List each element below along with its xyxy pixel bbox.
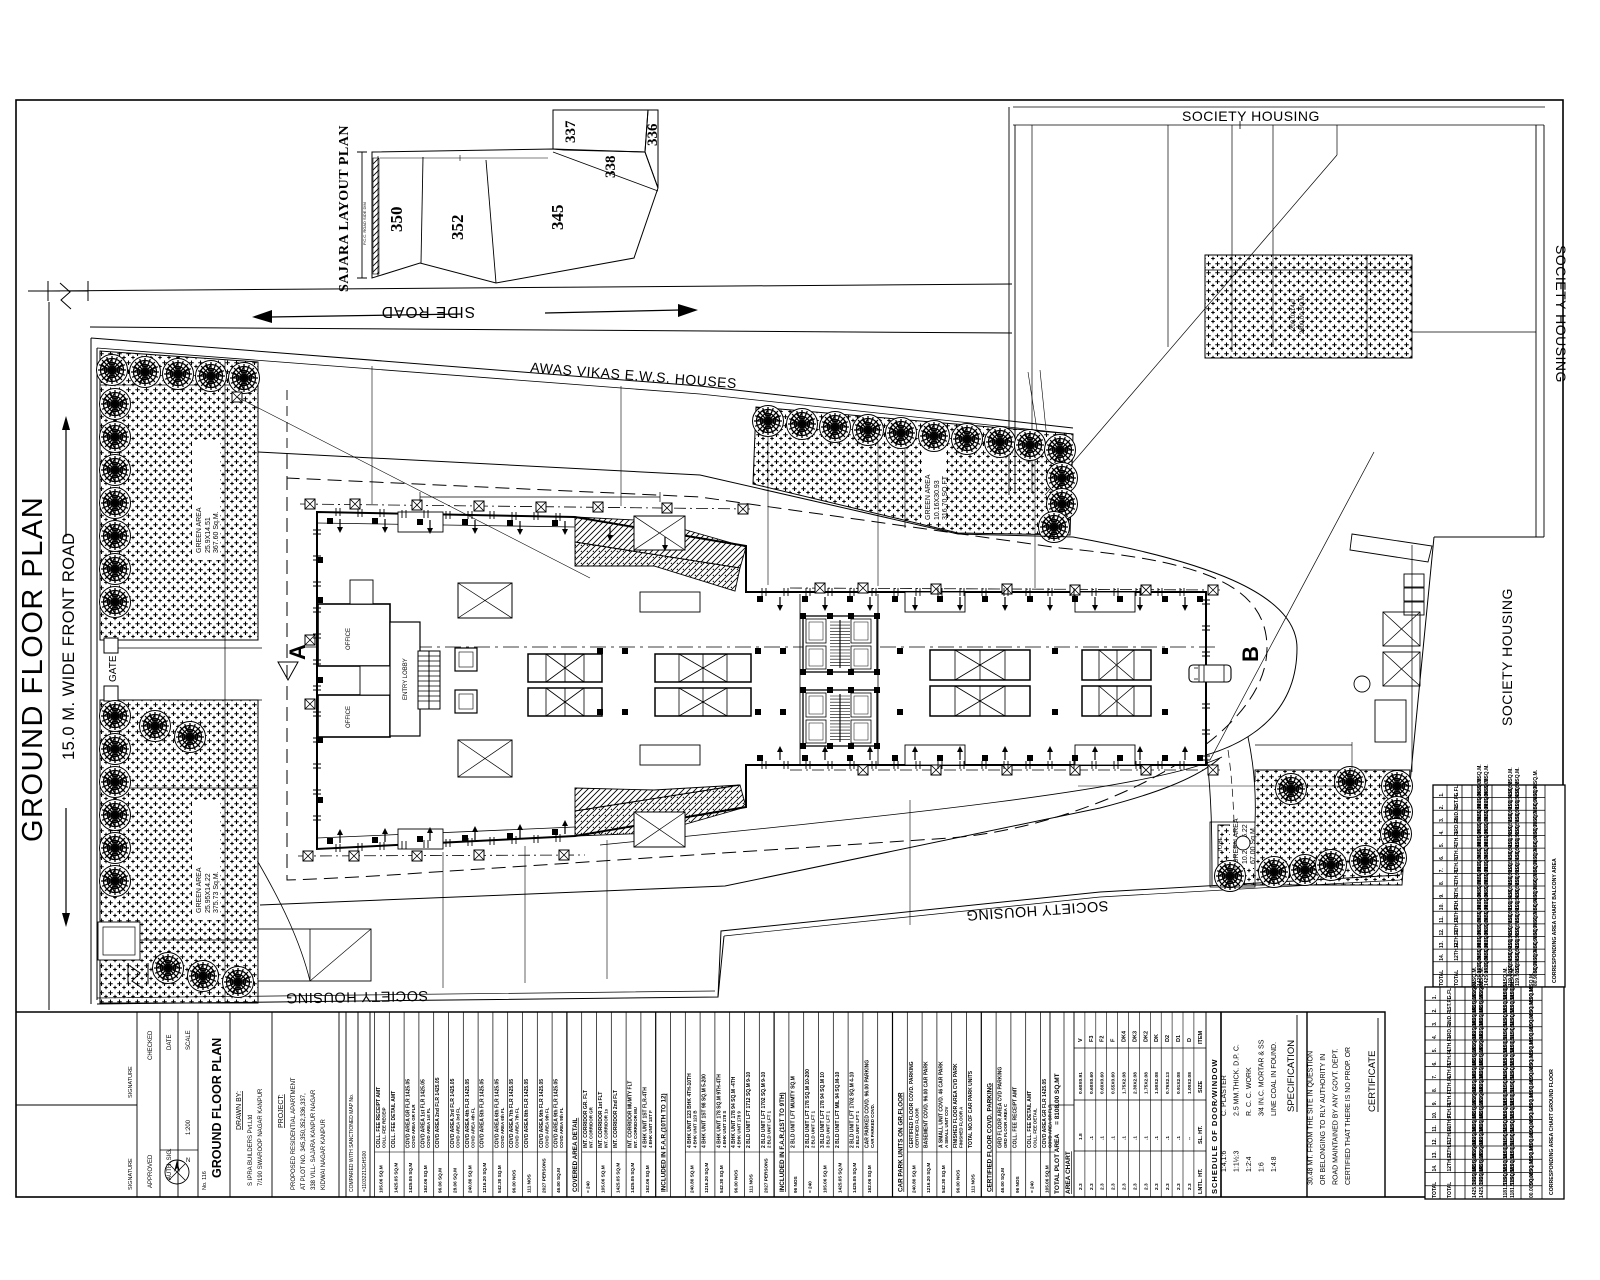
- svg-text:5.: 5.: [1439, 842, 1445, 847]
- svg-text:2.3: 2.3: [1111, 1183, 1117, 1190]
- svg-text:SIGNATURE: SIGNATURE: [128, 1066, 134, 1098]
- svg-text:SIGNATURE: SIGNATURE: [128, 1158, 134, 1190]
- svg-text:OR BELONGING TO RLY AUTHORITY: OR BELONGING TO RLY AUTHORITY IN: [1320, 1054, 1327, 1185]
- svg-text:46.00 SQ.M: 46.00 SQ.M: [1000, 1168, 1005, 1193]
- svg-text:COVD AREA 9th FL: COVD AREA 9th FL: [544, 1107, 549, 1148]
- svg-text:352: 352: [448, 215, 467, 241]
- svg-text:2 BLD UNIT LFT MIL 94 SQ.M-10: 2 BLD UNIT LFT MIL 94 SQ.M-10: [835, 1071, 841, 1148]
- svg-text:GROUND FLOOR PLAN: GROUND FLOOR PLAN: [17, 496, 49, 842]
- svg-text:4 BHK UNIT 1ST F: 4 BHK UNIT 1ST F: [648, 1110, 653, 1148]
- svg-text:46.00 SQ.M: 46.00 SQ.M: [556, 1168, 561, 1193]
- svg-text:1:4,1:6: 1:4,1:6: [1221, 1150, 1228, 1172]
- svg-text:0.91X2.08: 0.91X2.08: [1176, 1072, 1182, 1094]
- svg-text:3 BLD UNIT LFT 1: 3 BLD UNIT LFT 1: [826, 1110, 831, 1148]
- svg-text:2.: 2.: [1439, 804, 1445, 809]
- svg-text:F2: F2: [1100, 1036, 1106, 1042]
- svg-text:542.30 SQ.M: 542.30 SQ.M: [719, 1165, 724, 1193]
- svg-text:CORRESPONDING AREA CHART BALCO: CORRESPONDING AREA CHART BALCONY AREA: [1552, 858, 1558, 983]
- svg-text:CERTIFICATE: CERTIFICATE: [1367, 1051, 1378, 1112]
- svg-text:CAR PARK UNITS ON GR.FLOOR: CAR PARK UNITS ON GR.FLOOR: [898, 1092, 905, 1192]
- svg-text:DK: DK: [1154, 1034, 1160, 1042]
- svg-text:96 NOS: 96 NOS: [1015, 1176, 1020, 1193]
- svg-text:LNTL. HT.: LNTL. HT.: [1198, 1168, 1204, 1194]
- svg-text:PROPOSED RESIDENTIAL APARTMENT: PROPOSED RESIDENTIAL APARTMENT: [291, 1077, 297, 1190]
- svg-text:TOTAL: TOTAL: [1447, 1182, 1453, 1198]
- svg-text:30.48 MT. FROM THE SITE IN QUE: 30.48 MT. FROM THE SITE IN QUESTION: [1308, 1051, 1315, 1185]
- svg-text:.1: .1: [1122, 1136, 1128, 1140]
- svg-text:APPROVED: APPROVED: [148, 1154, 154, 1188]
- svg-text:DRAWN BY:: DRAWN BY:: [236, 1091, 243, 1130]
- svg-text:9.: 9.: [1439, 893, 1445, 898]
- svg-text:4 BHK UNIT 123 B: 4 BHK UNIT 123 B: [692, 1110, 697, 1148]
- svg-text:2.: 2.: [1432, 1008, 1438, 1013]
- svg-text:1425.05 SQ.M: 1425.05 SQ.M: [408, 1163, 413, 1193]
- svg-text:1425.05 SQ.M: 1425.05 SQ.M: [393, 1163, 398, 1193]
- svg-text:A SMALL UNIT COV: A SMALL UNIT COV: [944, 1106, 949, 1148]
- svg-text:ENTRY LOBBY: ENTRY LOBBY: [403, 658, 409, 700]
- svg-text:338: 338: [603, 156, 619, 179]
- svg-text:2800.00 SQ.M.: 2800.00 SQ.M.: [1300, 293, 1306, 334]
- svg-text:INT. CORRIDOR 1s: INT. CORRIDOR 1s: [604, 1108, 609, 1148]
- svg-text:S IPRA BUILDERS Pvt.Ltd: S IPRA BUILDERS Pvt.Ltd: [248, 1115, 254, 1186]
- svg-text:1216.20 SQ.M: 1216.20 SQ.M: [482, 1163, 487, 1193]
- svg-text:542.30 SQ.M: 542.30 SQ.M: [497, 1165, 502, 1193]
- svg-text:1425.05SQ.M.: 1425.05SQ.M.: [1472, 1165, 1478, 1198]
- svg-text:1181.51SQ.M.: 1181.51SQ.M.: [1510, 1165, 1516, 1198]
- svg-text:SPECIFICATION: SPECIFICATION: [1286, 1040, 1297, 1112]
- svg-text:INT. CORRIDOR MU: INT. CORRIDOR MU: [633, 1107, 638, 1148]
- svg-text:105.06 SQ.M: 105.06 SQ.M: [601, 1165, 606, 1193]
- svg-text:INT. CORRIDOR 2nd FLT: INT. CORRIDOR 2nd FLT: [613, 1090, 619, 1148]
- svg-text:2027 PERSONS: 2027 PERSONS: [541, 1158, 546, 1193]
- svg-text:SL. HT.: SL. HT.: [1198, 1125, 1204, 1144]
- svg-text:25.9X14.51: 25.9X14.51: [205, 517, 212, 553]
- svg-text:2 BLD UNIT LFT 1712 SQ.M 9-10: 2 BLD UNIT LFT 1712 SQ.M 9-10: [746, 1072, 752, 1148]
- svg-text:.1: .1: [1154, 1136, 1160, 1140]
- svg-text:ITEM: ITEM: [1198, 1030, 1204, 1044]
- svg-text:COVERED AREA DETAIL: COVERED AREA DETAIL: [572, 1118, 579, 1192]
- svg-text:67.00 Sq.M.: 67.00 Sq.M.: [1250, 826, 1257, 864]
- svg-text:200.0X14.0: 200.0X14.0: [1291, 299, 1297, 330]
- svg-text:FINISHED FLOOR A: FINISHED FLOOR A: [959, 1106, 964, 1148]
- svg-text:.1: .1: [1132, 1136, 1138, 1140]
- svg-text:7/190 SWAROOP NAGAR KANPUR: 7/190 SWAROOP NAGAR KANPUR: [258, 1088, 264, 1186]
- svg-text:5.: 5.: [1432, 1047, 1438, 1052]
- svg-text:25.95X14.22: 25.95X14.22: [205, 873, 212, 913]
- svg-text:GROUND FLOOR PLAN: GROUND FLOOR PLAN: [210, 1038, 224, 1178]
- svg-text:1425.05SQ.M.: 1425.05SQ.M.: [1479, 1165, 1485, 1198]
- svg-text:1:200: 1:200: [186, 1119, 192, 1135]
- svg-text:336: 336: [645, 123, 661, 146]
- svg-text:00.00SQ.M.: 00.00SQ.M.: [1529, 1171, 1535, 1198]
- svg-text:CORRESPONDING AREA CHART GROUN: CORRESPONDING AREA CHART GROUND FLOOR: [1549, 1069, 1555, 1195]
- svg-text:1.: 1.: [1439, 792, 1445, 797]
- svg-text:105.06 SQ.M: 105.06 SQ.M: [823, 1165, 828, 1193]
- svg-text:0.60X0.60: 0.60X0.60: [1100, 1072, 1106, 1094]
- svg-text:COVD AREA 4th FL: COVD AREA 4th FL: [470, 1107, 475, 1148]
- svg-text:1.50X2.08: 1.50X2.08: [1154, 1072, 1160, 1094]
- svg-text:12.: 12.: [1439, 928, 1445, 936]
- svg-text:105.06 SQ.M: 105.06 SQ.M: [1045, 1165, 1050, 1193]
- svg-text:F3: F3: [1089, 1036, 1095, 1042]
- svg-text:0.60X0.91: 0.60X0.91: [1078, 1072, 1084, 1094]
- svg-text:= 240: = 240: [808, 1181, 813, 1193]
- svg-text:345: 345: [548, 205, 567, 231]
- svg-text:111 NOS: 111 NOS: [971, 1174, 976, 1193]
- svg-text:COLL. FEE DETAIL: COLL. FEE DETAIL: [1033, 1108, 1038, 1148]
- svg-text:GRD FLOOR AREA C: GRD FLOOR AREA C: [1003, 1103, 1008, 1148]
- svg-text:2.3: 2.3: [1154, 1183, 1160, 1190]
- svg-text:3⁄4 IN.C. MORTAR & SS: 3⁄4 IN.C. MORTAR & SS: [1259, 1039, 1266, 1116]
- svg-text:10.: 10.: [1439, 903, 1445, 911]
- svg-text:11.: 11.: [1432, 1125, 1438, 1132]
- svg-text:4 BHK UNIT 1ST 98 SQ.M 5-200: 4 BHK UNIT 1ST 98 SQ.M 5-200: [702, 1074, 708, 1148]
- svg-text:2 BLD UNIT LFT MUMTY SQ.M: 2 BLD UNIT LFT MUMTY SQ.M: [790, 1076, 796, 1148]
- svg-text:SAJARA LAYOUT PLAN: SAJARA LAYOUT PLAN: [337, 125, 352, 292]
- svg-text:240.80 SQ.M: 240.80 SQ.M: [911, 1165, 916, 1193]
- svg-text:7.: 7.: [1432, 1074, 1438, 1079]
- svg-text:0.76X2.13: 0.76X2.13: [1165, 1072, 1171, 1094]
- svg-text:SOCIETY HOUSING: SOCIETY HOUSING: [1182, 108, 1320, 124]
- svg-text:B: B: [1238, 646, 1263, 662]
- svg-text:11.: 11.: [1439, 916, 1445, 923]
- svg-text:10.: 10.: [1432, 1111, 1438, 1119]
- svg-text:COLL. FEE RECEIP: COLL. FEE RECEIP: [382, 1107, 387, 1148]
- svg-text:GREEN AREA: GREEN AREA: [196, 507, 203, 553]
- svg-text:111 NOS: 111 NOS: [749, 1174, 754, 1193]
- svg-text:4 BHK UNIT 178 9: 4 BHK UNIT 178 9: [737, 1111, 742, 1148]
- svg-text:111 NOS: 111 NOS: [527, 1174, 532, 1193]
- svg-text:4.: 4.: [1432, 1034, 1438, 1039]
- svg-text:COVD AREA 2nd FLR 1425.05: COVD AREA 2nd FLR 1425.05: [435, 1077, 441, 1148]
- svg-text:= 240: = 240: [586, 1181, 591, 1193]
- svg-text:13.: 13.: [1432, 1151, 1438, 1159]
- svg-text:2.30X2.08: 2.30X2.08: [1132, 1072, 1138, 1094]
- svg-text:PROJECT:: PROJECT:: [278, 1094, 285, 1128]
- svg-text:1.75X2.08: 1.75X2.08: [1122, 1072, 1128, 1094]
- svg-text:.1: .1: [1165, 1136, 1171, 1140]
- svg-text:COVD AREA 6th FL: COVD AREA 6th FL: [500, 1107, 505, 1148]
- svg-text:CHECKED: CHECKED: [148, 1030, 154, 1060]
- svg-text:6.: 6.: [1432, 1061, 1438, 1066]
- svg-text:COVD AREA 3rd FL: COVD AREA 3rd FL: [456, 1107, 461, 1148]
- svg-text:INCLUDED IN F.A.R.(1ST TO 9TH): INCLUDED IN F.A.R.(1ST TO 9TH): [779, 1092, 786, 1192]
- svg-text:1.75X2.08: 1.75X2.08: [1143, 1072, 1149, 1094]
- svg-text:96 NOS: 96 NOS: [793, 1176, 798, 1193]
- svg-text:8.: 8.: [1439, 880, 1445, 885]
- svg-text:2.3: 2.3: [1187, 1183, 1193, 1190]
- svg-text:V: V: [1078, 1038, 1084, 1042]
- svg-text:SOCIETY HOUSING: SOCIETY HOUSING: [285, 987, 428, 1005]
- svg-text:CERTIFIED FLOOR COVD. PARKING: CERTIFIED FLOOR COVD. PARKING: [986, 1083, 993, 1192]
- svg-text:350: 350: [387, 207, 406, 233]
- svg-text:2 BLD UNIT LFT 1: 2 BLD UNIT LFT 1: [811, 1110, 816, 1148]
- svg-text:10.16X30.93: 10.16X30.93: [934, 480, 941, 520]
- svg-text:= 240: = 240: [1030, 1181, 1035, 1193]
- svg-text:INT. CORRIDOR GR: INT. CORRIDOR GR: [589, 1106, 594, 1148]
- svg-text:1:6: 1:6: [1259, 1162, 1266, 1172]
- svg-text:=11032213GHS00: =11032213GHS00: [362, 1151, 368, 1192]
- svg-text:OFFICE: OFFICE: [346, 628, 352, 650]
- svg-text:1.00X2.08: 1.00X2.08: [1187, 1072, 1193, 1094]
- svg-text:.1: .1: [1089, 1136, 1095, 1140]
- svg-text:7.: 7.: [1439, 868, 1445, 873]
- svg-text:1:4:8: 1:4:8: [1271, 1156, 1278, 1172]
- svg-text:14.: 14.: [1432, 1164, 1438, 1172]
- svg-text:OFFICE: OFFICE: [346, 706, 352, 728]
- svg-text:0.55X0.60: 0.55X0.60: [1111, 1072, 1117, 1094]
- svg-text:TOTAL: TOTAL: [1432, 1182, 1438, 1198]
- svg-text:TOTAL: TOTAL: [1454, 970, 1460, 986]
- svg-text:1.8: 1.8: [1078, 1133, 1084, 1140]
- svg-text:162.06 SQ.M: 162.06 SQ.M: [645, 1165, 650, 1193]
- svg-text:0.60X0.60: 0.60X0.60: [1089, 1072, 1095, 1094]
- svg-text:1425.05 SQ.M: 1425.05 SQ.M: [837, 1163, 842, 1193]
- svg-text:N: N: [186, 1158, 190, 1164]
- svg-text:1181.51SQ.M.: 1181.51SQ.M.: [1503, 1165, 1509, 1198]
- svg-text:CERTIFIED FLOOR: CERTIFIED FLOOR: [914, 1107, 919, 1148]
- svg-text:9.: 9.: [1432, 1100, 1438, 1105]
- svg-text:CAR PARKED COVD.: CAR PARKED COVD.: [870, 1104, 875, 1148]
- svg-text:28.06 SQ.M: 28.06 SQ.M: [453, 1168, 458, 1193]
- svg-text:TOTAL PLOT AREA = 8108.00: TOTAL PLOT AREA = 8108.00 SQ.MT: [1054, 1073, 1061, 1194]
- svg-text:12.: 12.: [1432, 1137, 1438, 1145]
- svg-text:15.0 M. WIDE FRONT ROAD: 15.0 M. WIDE FRONT ROAD: [60, 532, 78, 760]
- svg-text:1216.20 SQ.M: 1216.20 SQ.M: [926, 1163, 931, 1193]
- svg-text:2.3: 2.3: [1089, 1183, 1095, 1190]
- svg-text:4.: 4.: [1439, 830, 1445, 835]
- svg-text:D2: D2: [1165, 1035, 1171, 1042]
- svg-text:96.00 NOS: 96.00 NOS: [956, 1170, 961, 1193]
- svg-text:D: D: [1187, 1038, 1193, 1042]
- svg-text:1425.05 SQ.M: 1425.05 SQ.M: [615, 1163, 620, 1193]
- svg-text:14.: 14.: [1439, 953, 1445, 961]
- svg-text:338 VILL- SAJARA KANPUR NAGAR: 338 VILL- SAJARA KANPUR NAGAR: [311, 1089, 317, 1190]
- svg-text:96.00 NOS: 96.00 NOS: [734, 1170, 739, 1193]
- svg-text:DATE: DATE: [167, 1034, 173, 1050]
- svg-text:DK2: DK2: [1143, 1031, 1149, 1042]
- svg-text:TOTAL: TOTAL: [1439, 970, 1445, 986]
- svg-text:375.73 Sq.M.: 375.73 Sq.M.: [213, 871, 220, 913]
- svg-text:COLL. FEE RECEIPT AMT: COLL. FEE RECEIPT AMT: [1012, 1087, 1018, 1148]
- svg-text:TO BE: TO BE: [1218, 836, 1224, 852]
- svg-text:COVD AREA 5th FLR 1425.05: COVD AREA 5th FLR 1425.05: [480, 1079, 486, 1148]
- svg-text:SOCIETY HOUSING: SOCIETY HOUSING: [1499, 588, 1515, 726]
- svg-text:2.3: 2.3: [1165, 1183, 1171, 1190]
- svg-text:SOCIETY HOUSING: SOCIETY HOUSING: [1553, 245, 1569, 383]
- svg-text:COLL. FEE DETAIL AMT: COLL. FEE DETAIL AMT: [391, 1091, 397, 1148]
- svg-text:.1: .1: [1100, 1136, 1106, 1140]
- svg-text:GREEN AREA: GREEN AREA: [925, 474, 932, 520]
- svg-text:COVD AREA GR FLR: COVD AREA GR FLR: [411, 1104, 416, 1148]
- svg-text:KIDWAI NAGAR KANPUR: KIDWAI NAGAR KANPUR: [321, 1119, 327, 1190]
- svg-text:SCHEDULE OF DOOR⁄WINDOW: SCHEDULE OF DOOR⁄WINDOW: [1210, 1059, 1219, 1195]
- svg-text:COVD AREA 7th FL: COVD AREA 7th FL: [515, 1107, 520, 1148]
- svg-text:R. C. C. WORK: R. C. C. WORK: [1246, 1067, 1253, 1116]
- svg-text:GATE: GATE: [108, 655, 119, 682]
- svg-text:GREEN AREA: GREEN AREA: [196, 867, 203, 913]
- svg-text:13.: 13.: [1439, 941, 1445, 949]
- svg-text:COVD AREA 1st FL: COVD AREA 1st FL: [426, 1108, 431, 1148]
- svg-text:COMPARED WITH SANCTIONED MAP N: COMPARED WITH SANCTIONED MAP No.: [349, 1094, 355, 1192]
- svg-text:162.06 SQ.M: 162.06 SQ.M: [423, 1165, 428, 1193]
- svg-text:SIZE: SIZE: [1198, 1080, 1204, 1093]
- svg-text:2.3: 2.3: [1078, 1183, 1084, 1190]
- svg-text:1:2:4: 1:2:4: [1246, 1156, 1253, 1172]
- svg-text:P.C.C. ROAD SIDE DIM: P.C.C. ROAD SIDE DIM: [362, 202, 367, 245]
- svg-text:No. 116: No. 116: [202, 1171, 208, 1190]
- svg-text:6.: 6.: [1439, 855, 1445, 860]
- svg-text:C. PLASTER: C. PLASTER: [1221, 1075, 1228, 1116]
- svg-text:1425.05 SQ.M: 1425.05 SQ.M: [630, 1163, 635, 1193]
- svg-text:LINE COAL IN FOUND.: LINE COAL IN FOUND.: [1271, 1042, 1278, 1116]
- svg-text:12TH.FL: 12TH.FL: [1447, 1152, 1453, 1172]
- svg-text:COVD AREA 8th FLR 1425.05: COVD AREA 8th FLR 1425.05: [524, 1079, 530, 1148]
- svg-text:3.: 3.: [1439, 817, 1445, 822]
- svg-text:.1: .1: [1176, 1136, 1182, 1140]
- svg-text:2.3: 2.3: [1176, 1183, 1182, 1190]
- svg-text:4 BHK UNIT 178 S: 4 BHK UNIT 178 S: [722, 1111, 727, 1148]
- svg-text:12TH.FL: 12TH.FL: [1454, 941, 1460, 961]
- svg-text:1216.20 SQ.M: 1216.20 SQ.M: [704, 1163, 709, 1193]
- svg-text:96.06 SQ.M: 96.06 SQ.M: [438, 1168, 443, 1193]
- svg-text:2 BLD UNIT LFT 1: 2 BLD UNIT LFT 1: [766, 1110, 771, 1148]
- svg-text:--: --: [1188, 1136, 1193, 1140]
- svg-text:96.00 NOS: 96.00 NOS: [512, 1170, 517, 1193]
- svg-text:SCALE: SCALE: [186, 1030, 192, 1050]
- svg-text:162.06 SQ.M: 162.06 SQ.M: [867, 1165, 872, 1193]
- svg-text:316.70 SQ.FT: 316.70 SQ.FT: [942, 475, 949, 520]
- svg-text:1425.05 SQ.M: 1425.05 SQ.M: [852, 1163, 857, 1193]
- svg-text:INCLUDED IN F.A.R.(10TH TO 12): INCLUDED IN F.A.R.(10TH TO 12): [661, 1093, 668, 1192]
- svg-text:3.: 3.: [1432, 1021, 1438, 1026]
- svg-text:2027 PERSONS: 2027 PERSONS: [763, 1158, 768, 1193]
- svg-text:337: 337: [563, 120, 579, 143]
- svg-text:AREA CHART: AREA CHART: [1065, 1151, 1072, 1194]
- svg-text:105.06 SQ.M: 105.06 SQ.M: [379, 1165, 384, 1193]
- svg-text:542.30 SQ.M: 542.30 SQ.M: [941, 1165, 946, 1193]
- svg-text:ROAD MAINTAINED BY ANY GOVT. D: ROAD MAINTAINED BY ANY GOVT. DEPT.: [1333, 1048, 1340, 1185]
- svg-text:240.80 SQ.M: 240.80 SQ.M: [467, 1165, 472, 1193]
- svg-text:2 BLD UNIT LFT 1: 2 BLD UNIT LFT 1: [855, 1110, 860, 1148]
- svg-text:D1: D1: [1176, 1035, 1182, 1042]
- svg-text:1:1½:3: 1:1½:3: [1233, 1150, 1241, 1172]
- svg-text:.1: .1: [1111, 1136, 1117, 1140]
- svg-text:8.: 8.: [1432, 1087, 1438, 1092]
- svg-text:TOTAL NO.OF CAR PARK UNITS: TOTAL NO.OF CAR PARK UNITS: [968, 1070, 974, 1148]
- svg-text:240.80 SQ.M: 240.80 SQ.M: [689, 1165, 694, 1193]
- svg-text:DK3: DK3: [1132, 1031, 1138, 1042]
- svg-text:2.3: 2.3: [1143, 1183, 1149, 1190]
- svg-text:AT PLOT NO. 345,350,352,336,33: AT PLOT NO. 345,350,352,336,337,: [301, 1093, 307, 1190]
- svg-text:1.: 1.: [1432, 994, 1438, 999]
- svg-text:DK4: DK4: [1122, 1030, 1128, 1042]
- svg-text:.1: .1: [1143, 1136, 1149, 1140]
- svg-text:BASEMENT COVD. 96.00 CAR PARK: BASEMENT COVD. 96.00 CAR PARK: [924, 1061, 930, 1148]
- svg-text:SIDE ROAD: SIDE ROAD: [381, 303, 475, 320]
- svg-text:2.3: 2.3: [1132, 1183, 1138, 1190]
- svg-text:2.3: 2.3: [1122, 1183, 1128, 1190]
- svg-text:2.3: 2.3: [1100, 1183, 1106, 1190]
- svg-text:2.5 MM.THICK. D.P. C.: 2.5 MM.THICK. D.P. C.: [1234, 1044, 1241, 1116]
- svg-text:COVD AREA 9th FL: COVD AREA 9th FL: [559, 1107, 564, 1148]
- svg-text:CERTIFIED THAT THERE IS NO PRO: CERTIFIED THAT THERE IS NO PROP. OR: [1345, 1047, 1352, 1185]
- svg-text:A: A: [285, 644, 310, 660]
- svg-text:367.60 Sq.M.: 367.60 Sq.M.: [213, 511, 220, 553]
